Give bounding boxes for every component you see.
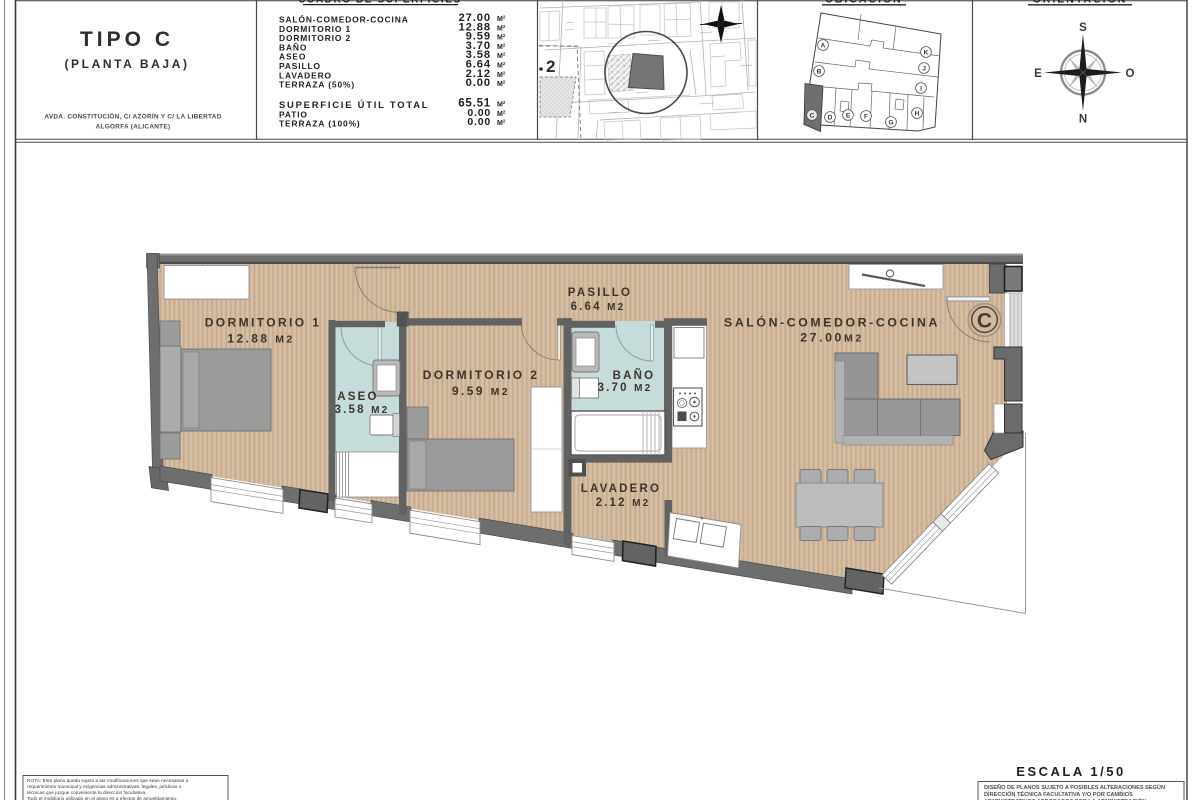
svg-text:E: E — [846, 112, 851, 119]
svg-text:PASILLO: PASILLO — [568, 287, 632, 299]
svg-text:O: O — [1126, 68, 1135, 80]
svg-text:BAÑO: BAÑO — [613, 369, 656, 382]
svg-text:3.58 M2: 3.58 M2 — [335, 404, 390, 416]
svg-text:técnicas que juzgue convenient: técnicas que juzgue conveniente la direc… — [27, 790, 146, 796]
svg-text:SALÓN-COMEDOR-COCINA: SALÓN-COMEDOR-COCINA — [724, 315, 940, 330]
svg-text:B: B — [817, 68, 822, 75]
svg-text:12.88 M2: 12.88 M2 — [227, 332, 294, 346]
svg-text:A: A — [821, 42, 826, 49]
svg-text:TERRAZA (100%): TERRAZA (100%) — [279, 119, 361, 129]
svg-text:DIRECCIÓN TÉCNICA FACULTATIVA: DIRECCIÓN TÉCNICA FACULTATIVA Y/O POR CA… — [984, 790, 1133, 798]
svg-text:TERRAZA (50%): TERRAZA (50%) — [279, 80, 355, 90]
svg-text:6.64 M2: 6.64 M2 — [571, 301, 626, 313]
svg-text:0.00: 0.00 — [467, 116, 491, 128]
svg-text:D: D — [828, 114, 833, 121]
svg-text:2.12 M2: 2.12 M2 — [596, 497, 651, 509]
svg-text:F: F — [864, 113, 868, 120]
svg-text:ASEO: ASEO — [337, 391, 378, 403]
svg-text:J: J — [922, 65, 926, 72]
svg-text:G: G — [888, 119, 893, 126]
svg-text:DISEÑO DE PLANOS SUJETO A POSI: DISEÑO DE PLANOS SUJETO A POSIBLES ALTER… — [984, 784, 1165, 791]
svg-text:ALGORFA (ALICANTE): ALGORFA (ALICANTE) — [96, 124, 171, 131]
svg-text:LAVADERO: LAVADERO — [581, 483, 661, 495]
svg-text:TIPO C: TIPO C — [80, 28, 174, 51]
svg-text:N: N — [1079, 114, 1087, 126]
svg-text:H: H — [915, 110, 920, 117]
svg-text:ESCALA 1/50: ESCALA 1/50 — [1016, 764, 1125, 779]
svg-text:E: E — [1034, 68, 1042, 80]
svg-text:C: C — [977, 310, 992, 333]
svg-text:(PLANTA BAJA): (PLANTA BAJA) — [64, 57, 189, 71]
svg-text:I: I — [920, 85, 922, 92]
svg-text:NOTA: Este plano queda sujeto: NOTA: Este plano queda sujeto a las modi… — [27, 778, 189, 784]
svg-text:S: S — [1079, 22, 1087, 34]
svg-text:2: 2 — [546, 57, 555, 76]
svg-text:3.70 M2: 3.70 M2 — [598, 382, 653, 394]
svg-text:DORMITORIO 1: DORMITORIO 1 — [205, 316, 322, 330]
svg-text:27.00M2: 27.00M2 — [800, 331, 864, 345]
svg-text:Todo el mobiliario utilizado e: Todo el mobiliario utilizado en el plano… — [27, 796, 177, 800]
svg-text:C: C — [810, 112, 815, 119]
svg-text:DORMITORIO 2: DORMITORIO 2 — [423, 368, 540, 382]
svg-text:9.59 M2: 9.59 M2 — [452, 384, 510, 398]
svg-text:K: K — [924, 49, 929, 56]
svg-text:0.00: 0.00 — [466, 77, 491, 89]
svg-text:AVDA. CONSTITUCIÓN, C/ AZORÍN: AVDA. CONSTITUCIÓN, C/ AZORÍN Y C/ LA LI… — [44, 112, 221, 121]
svg-text:requerimiento municipal y exig: requerimiento municipal y exigencias adm… — [27, 784, 182, 790]
